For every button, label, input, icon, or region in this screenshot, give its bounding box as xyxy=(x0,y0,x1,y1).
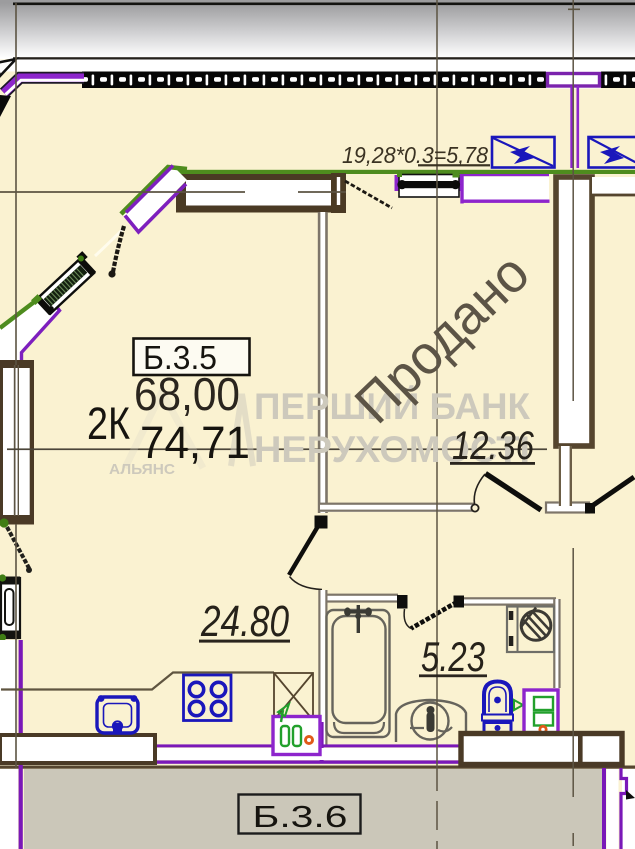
svg-text:68,00: 68,00 xyxy=(134,368,240,420)
svg-text:5.23: 5.23 xyxy=(421,633,485,680)
svg-text:2К: 2К xyxy=(87,398,130,449)
svg-text:24.80: 24.80 xyxy=(200,597,289,646)
svg-text:19,28*0.3=5,78: 19,28*0.3=5,78 xyxy=(342,142,488,168)
svg-text:12.36: 12.36 xyxy=(452,424,535,468)
svg-text:74,71: 74,71 xyxy=(140,417,250,468)
svg-text:Б.3.6: Б.3.6 xyxy=(253,799,348,834)
